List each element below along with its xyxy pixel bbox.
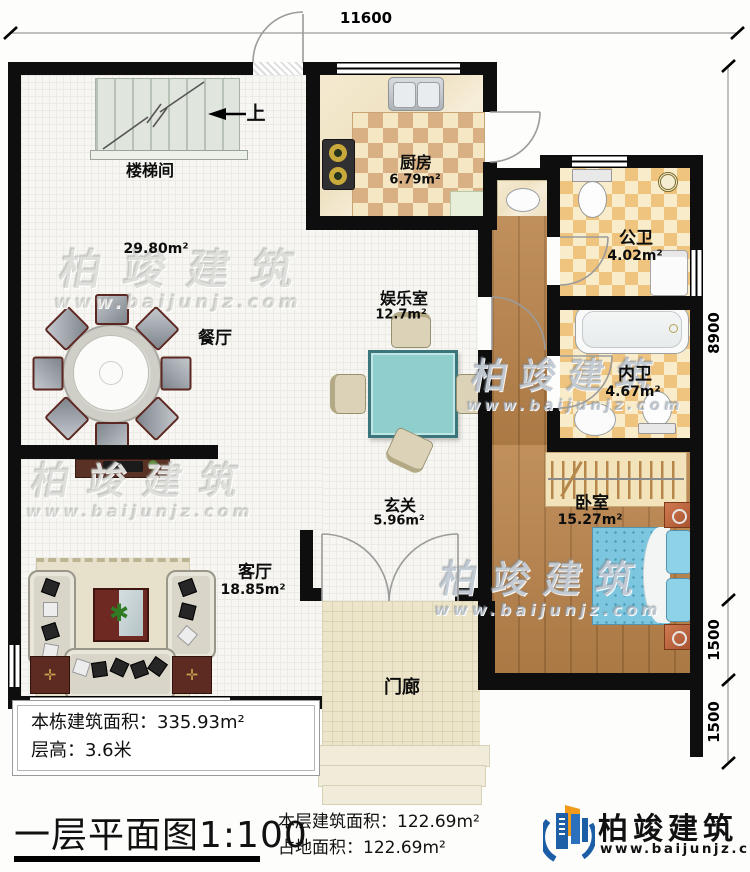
- dimension-right-upper: 8900: [705, 312, 723, 354]
- dimension-right-middle: 1500: [705, 619, 723, 661]
- pillow: [41, 622, 60, 641]
- pillow: [177, 625, 198, 646]
- wall: [306, 62, 320, 230]
- room-area-dining: 29.80m²: [123, 242, 188, 256]
- room-area-private-bath: 4.67m²: [605, 385, 660, 399]
- room-area-entertainment: 12.7m²: [375, 309, 426, 322]
- room-label-private-bath: 内卫: [618, 367, 652, 384]
- dimension-top: 11600: [340, 9, 392, 27]
- wall: [8, 445, 218, 459]
- stove: [322, 139, 355, 190]
- room-label-entertainment: 娱乐室: [380, 291, 428, 307]
- pillow: [72, 658, 91, 677]
- wall: [306, 216, 497, 230]
- cutting-board: [450, 191, 485, 218]
- game-table: [368, 350, 458, 438]
- watermark-name: 柏竣建筑: [28, 462, 262, 502]
- wall: [547, 296, 703, 310]
- staircase: [95, 78, 240, 152]
- porch-floor: [322, 601, 480, 745]
- pillow: [41, 578, 60, 597]
- floor-plan-page: ✱ ✛ ✛: [0, 0, 750, 872]
- window: [8, 645, 21, 687]
- watermark-name: 柏竣建筑: [436, 560, 670, 600]
- end-table: ✛: [172, 656, 212, 694]
- chair: [161, 357, 192, 391]
- room-label-stairwell: 楼梯间: [126, 163, 174, 179]
- pillow: [130, 660, 149, 679]
- wall: [8, 62, 21, 709]
- window: [337, 62, 460, 75]
- room-label-kitchen: 厨房: [400, 155, 432, 171]
- nightstand: [664, 624, 692, 650]
- footprint-area-text: 占地面积：122.69m²: [278, 836, 480, 862]
- logo-website: www.baijunjz.com: [600, 841, 750, 857]
- watermark: 柏竣建筑 www.baijunjz.com: [52, 248, 319, 313]
- chair: [330, 374, 366, 414]
- watermark-url: www.baijunjz.com: [25, 502, 256, 521]
- wall: [483, 162, 497, 230]
- stair-landing: [90, 150, 248, 160]
- chair: [33, 357, 64, 391]
- dimension-right-lower: 1500: [705, 701, 723, 743]
- wall: [547, 296, 560, 356]
- room-area-living: 18.85m²: [220, 583, 285, 597]
- pillow: [147, 656, 168, 677]
- room-area-kitchen: 6.79m²: [389, 174, 440, 187]
- room-label-public-bath: 公卫: [619, 231, 653, 248]
- plan-title-underline: [14, 856, 260, 862]
- watermark-url: www.baijunjz.com: [433, 600, 664, 619]
- armchair: [166, 570, 216, 660]
- wall: [547, 438, 703, 452]
- floor-height-text: 层高：3.6米: [31, 737, 319, 765]
- watermark-url: www.baijunjz.com: [52, 292, 312, 313]
- door-opening: [253, 62, 303, 75]
- toilet-base: [638, 423, 676, 434]
- wall: [495, 673, 703, 690]
- dining-table-center: [99, 361, 123, 385]
- pillow: [110, 658, 130, 678]
- plan-title: 一层平面图1:100: [14, 806, 308, 858]
- floor-area-text: 本层建筑面积：122.69m²: [278, 810, 480, 836]
- bed-pillow: [666, 530, 692, 574]
- porch-step: [318, 765, 486, 787]
- wall: [483, 62, 497, 112]
- wall: [690, 155, 703, 757]
- room-label-bedroom: 卧室: [575, 496, 609, 513]
- shower-head: [658, 172, 678, 192]
- porch-step: [322, 785, 482, 805]
- wall: [547, 285, 560, 296]
- bathtub: [575, 305, 689, 354]
- wardrobe: [545, 452, 687, 507]
- window: [690, 250, 703, 296]
- logo-building-icon: [543, 800, 595, 862]
- room-area-bedroom: 15.27m²: [557, 513, 622, 527]
- room-area-foyer: 5.96m²: [373, 515, 424, 528]
- vanity-sink: [506, 188, 540, 212]
- wall: [300, 588, 322, 601]
- kitchen-sink: [388, 77, 444, 111]
- room-label-porch: 门廊: [384, 679, 420, 697]
- room-label-dining: 餐厅: [198, 331, 232, 348]
- stair-up-label: 上: [246, 105, 265, 124]
- end-table: ✛: [30, 656, 70, 694]
- company-logo: 柏竣建筑 www.baijunjz.com: [543, 800, 743, 864]
- porch-step: [314, 745, 490, 767]
- nightstand: [664, 502, 692, 528]
- watermark: 柏竣建筑 www.baijunjz.com: [433, 560, 671, 619]
- pillow: [43, 602, 58, 617]
- pillow: [178, 578, 197, 597]
- building-info-box: 本栋建筑面积：335.93m² 层高：3.6米: [12, 700, 320, 776]
- wall: [478, 230, 492, 297]
- bed-pillow: [666, 578, 692, 622]
- room-label-foyer: 玄关: [384, 498, 416, 514]
- building-area-text: 本栋建筑面积：335.93m²: [31, 709, 319, 737]
- room-area-public-bath: 4.02m²: [607, 249, 662, 263]
- toilet-bowl: [578, 181, 607, 218]
- pillow: [178, 602, 196, 620]
- sofa: [64, 648, 176, 700]
- floor-stats: 本层建筑面积：122.69m² 占地面积：122.69m²: [278, 810, 480, 861]
- plant: ✱: [107, 601, 131, 625]
- window: [572, 155, 627, 168]
- wall: [547, 168, 560, 237]
- room-label-living: 客厅: [238, 565, 272, 582]
- pillow: [91, 661, 108, 678]
- watermark: 柏竣建筑 www.baijunjz.com: [25, 462, 263, 521]
